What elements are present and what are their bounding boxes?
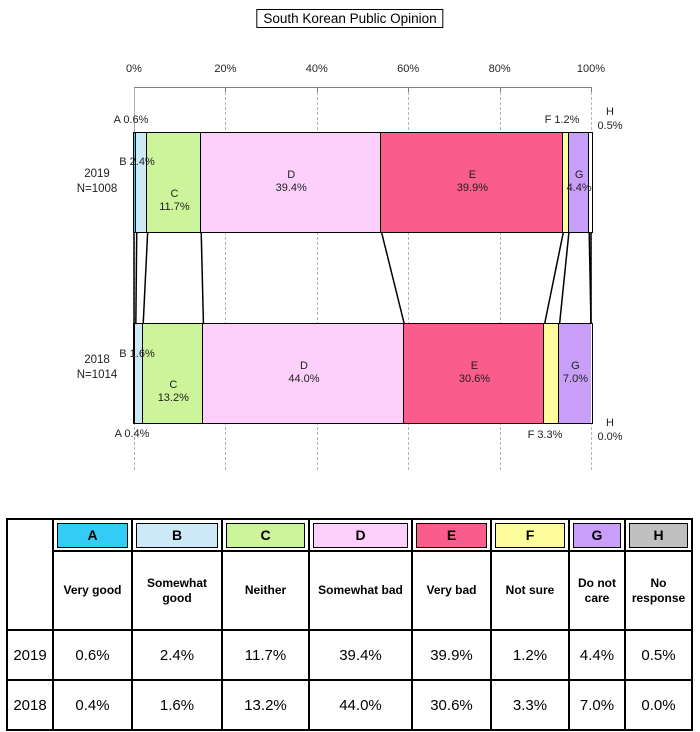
label-2019-G: G 4.4% [544,169,614,196]
cell-2018-B: 1.6% [132,680,222,730]
row-label-2019: 2019 [7,630,53,680]
cell-2019-G: 4.4% [569,630,625,680]
header-letter-A: A [57,523,128,548]
axis-tick-label-100: 100% [569,63,613,75]
label-2019-D: D 39.4% [256,169,326,196]
axis-tick-label-0: 0% [112,63,156,75]
axis-tick-label-20: 20% [203,63,247,75]
data-table: ABCDEFGHVery goodSomewhat goodNeitherSom… [6,518,693,731]
label-2018-G: G 7.0% [540,360,610,387]
cell-2019-E: 39.9% [412,630,491,680]
year-label-2018: 2018 N=1014 [57,353,137,383]
label-2018-H-outside: H 0.0% [572,417,648,444]
bar-2018 [133,323,593,424]
header-letter-D: D [313,523,408,548]
cell-2018-C: 13.2% [222,680,309,730]
header-swatch-cell-F: F [491,519,569,551]
label-2018-A-outside: A 0.4% [94,428,170,442]
table-row-2019: 20190.6%2.4%11.7%39.4%39.9%1.2%4.4%0.5% [7,630,692,680]
header-letter-B: B [136,523,218,548]
label-2019-A-outside: A 0.6% [93,114,169,128]
header-label-H: No response [625,551,692,630]
header-label-D: Somewhat bad [309,551,412,630]
table-row-2018: 20180.4%1.6%13.2%44.0%30.6%3.3%7.0%0.0% [7,680,692,730]
page: South Korean Public Opinion 0%20%40%60%8… [0,0,700,732]
cell-2019-A: 0.6% [53,630,132,680]
label-2019-E: E 39.9% [437,169,507,196]
table-corner [7,519,53,630]
header-label-B: Somewhat good [132,551,222,630]
cell-2018-A: 0.4% [53,680,132,730]
header-label-F: Not sure [491,551,569,630]
header-swatch-cell-B: B [132,519,222,551]
bar-2019 [133,132,593,233]
axis-tick-label-40: 40% [295,63,339,75]
table-row-labels: Very goodSomewhat goodNeitherSomewhat ba… [7,551,692,630]
header-letter-E: E [416,523,487,548]
header-swatch-cell-H: H [625,519,692,551]
cell-2018-H: 0.0% [625,680,692,730]
label-2018-E: E 30.6% [439,360,509,387]
header-label-A: Very good [53,551,132,630]
header-letter-H: H [629,523,688,548]
header-letter-C: C [226,523,305,548]
cell-2019-H: 0.5% [625,630,692,680]
header-swatch-cell-C: C [222,519,309,551]
row-label-2018: 2018 [7,680,53,730]
label-2019-C: C 11.7% [139,188,209,215]
header-label-C: Neither [222,551,309,630]
header-letter-G: G [573,523,621,548]
cell-2018-E: 30.6% [412,680,491,730]
header-swatch-cell-A: A [53,519,132,551]
cell-2019-F: 1.2% [491,630,569,680]
header-label-E: Very bad [412,551,491,630]
header-label-G: Do not care [569,551,625,630]
segment-2018-C [143,324,203,423]
axis-tick-label-80: 80% [478,63,522,75]
cell-2018-D: 44.0% [309,680,412,730]
label-2019-H-outside: H 0.5% [572,106,648,133]
header-swatch-cell-E: E [412,519,491,551]
cell-2019-B: 2.4% [132,630,222,680]
cell-2019-D: 39.4% [309,630,412,680]
header-swatch-cell-G: G [569,519,625,551]
header-letter-F: F [495,523,565,548]
header-swatch-cell-D: D [309,519,412,551]
label-2018-C: C 13.2% [138,379,208,406]
year-label-2019: 2019 N=1008 [57,167,137,197]
cell-2019-C: 11.7% [222,630,309,680]
plot-area: 0%20%40%60%80%100%C 11.7%D 39.4%E 39.9%G… [0,0,700,505]
axis-tick-label-60: 60% [386,63,430,75]
segment-2019-C [147,133,200,232]
cell-2018-F: 3.3% [491,680,569,730]
table-row-swatches: ABCDEFGH [7,519,692,551]
cell-2018-G: 7.0% [569,680,625,730]
label-2018-D: D 44.0% [269,360,339,387]
segment-2019-B [136,133,147,232]
x-axis [134,87,591,88]
